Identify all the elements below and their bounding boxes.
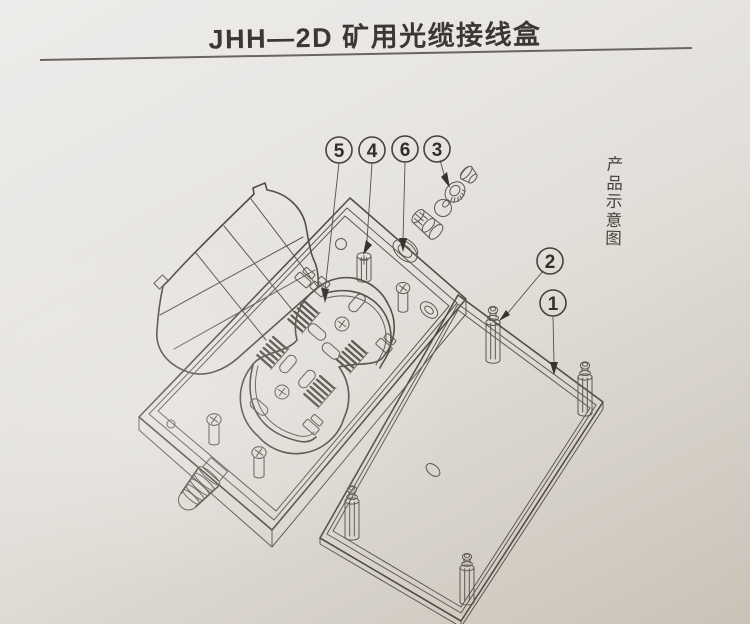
cover-plate xyxy=(320,295,603,624)
tray-screw xyxy=(275,385,289,399)
box-floor-slot xyxy=(424,461,443,479)
tray-edge-clip xyxy=(375,332,398,355)
callout-5: 5 xyxy=(326,137,352,163)
box-floor-hole xyxy=(336,239,347,250)
lid-tab xyxy=(154,275,168,289)
box-lid xyxy=(154,183,318,374)
callout-number-2: 2 xyxy=(545,252,556,273)
phillips-screw-post xyxy=(252,446,266,478)
splice-holder xyxy=(303,375,336,409)
callout-4: 4 xyxy=(359,137,385,163)
callout-balloons: 5 4 6 3 2 1 xyxy=(326,136,566,316)
tray-slot xyxy=(248,397,270,418)
callout-number-1: 1 xyxy=(548,294,559,315)
corner-post xyxy=(345,486,359,540)
callout-1: 1 xyxy=(540,290,566,316)
tray-slot xyxy=(306,322,328,343)
tray-hinge-clip xyxy=(294,266,317,289)
splice-holder xyxy=(287,300,320,334)
tray-slot xyxy=(347,292,368,314)
callout-6: 6 xyxy=(392,136,418,162)
callout-number-5: 5 xyxy=(334,141,345,162)
callout-3: 3 xyxy=(424,136,450,162)
tray-slot xyxy=(297,368,318,390)
callout-number-4: 4 xyxy=(367,141,378,162)
gland-parts-exploded xyxy=(389,164,480,266)
callout-number-6: 6 xyxy=(400,140,411,161)
callout-number-3: 3 xyxy=(432,140,443,161)
callout-2: 2 xyxy=(537,248,563,274)
hex-standoff xyxy=(356,252,372,282)
exploded-view-diagram: 5 4 6 3 2 1 xyxy=(0,0,750,624)
tray-slot xyxy=(320,341,342,362)
corner-post xyxy=(486,306,500,363)
second-gland-seat xyxy=(417,299,441,322)
compression-nut xyxy=(409,207,445,242)
phillips-screw-post xyxy=(207,413,221,445)
phillips-screw-post xyxy=(396,282,410,312)
tray-screw xyxy=(335,317,349,331)
photographed-page: JHH—2D 矿用光缆接线盒 产品示意图 xyxy=(0,0,750,624)
